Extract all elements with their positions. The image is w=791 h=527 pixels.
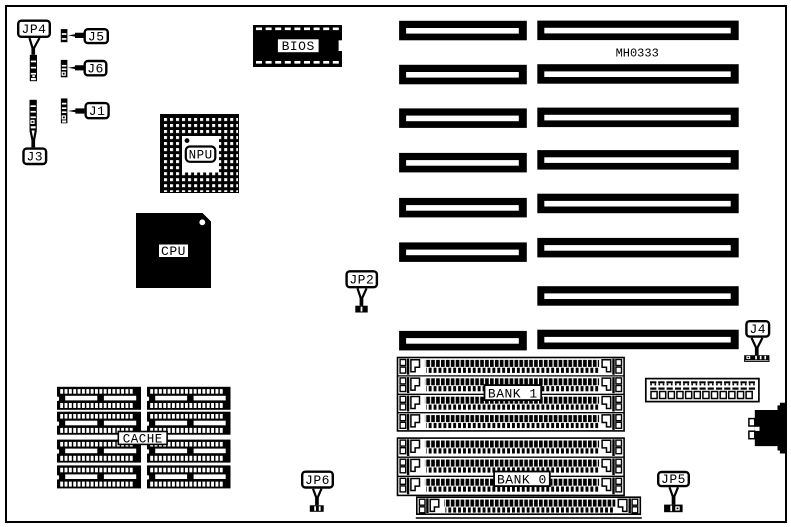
svg-text:JP2: JP2 (349, 272, 374, 287)
svg-text:BANK 1: BANK 1 (488, 387, 538, 402)
svg-text:CPU: CPU (161, 244, 186, 259)
svg-text:CACHE: CACHE (123, 432, 163, 446)
svg-text:J3: J3 (26, 150, 43, 165)
svg-text:BANK 0: BANK 0 (497, 473, 547, 488)
svg-text:JP5: JP5 (661, 472, 686, 487)
svg-text:JP4: JP4 (22, 22, 47, 37)
svg-text:J6: J6 (87, 61, 104, 76)
svg-text:J1: J1 (89, 104, 106, 119)
svg-text:J5: J5 (88, 29, 105, 44)
svg-text:JP6: JP6 (305, 473, 330, 488)
svg-text:MH0333: MH0333 (616, 47, 659, 61)
svg-text:J4: J4 (749, 322, 766, 337)
svg-text:NPU: NPU (189, 148, 213, 162)
svg-text:BIOS: BIOS (282, 39, 315, 54)
